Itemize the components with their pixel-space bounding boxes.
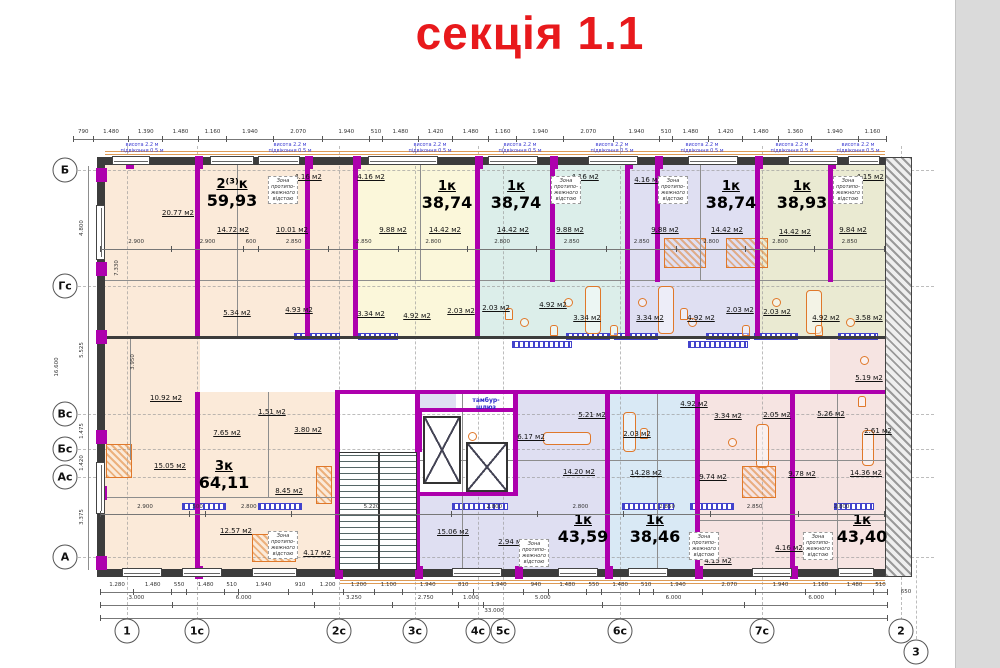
- axis-bubble: Б: [53, 158, 78, 183]
- partition-wall: [100, 280, 885, 281]
- load-bearing-wall: [550, 156, 558, 169]
- load-bearing-wall: [755, 156, 763, 169]
- room-area-label: 15.05 м2: [154, 462, 186, 470]
- apartment-total-area: 38,93: [777, 194, 828, 212]
- partition-wall: [100, 497, 337, 498]
- dimension: 2.800: [798, 511, 885, 517]
- room-area-label: 4.92 м2: [687, 314, 715, 322]
- apartment-label: 1к38,74: [491, 180, 542, 211]
- load-bearing-wall: [335, 390, 887, 394]
- room-area-label: 14.36 м2: [850, 469, 882, 477]
- apartment-type: 1к: [706, 180, 757, 194]
- dimension: 910: [288, 589, 312, 595]
- room-area-label: 4.16 м2: [775, 544, 803, 552]
- dimension: 1.160: [488, 136, 516, 142]
- room-area-label: 9.88 м2: [379, 226, 407, 234]
- window-height-note: висота 2.2 м підвіконня 0.5 м: [591, 142, 634, 155]
- dimension: 2.850: [328, 246, 398, 252]
- partition-wall: [837, 392, 838, 575]
- dimension: 1.160: [198, 136, 226, 142]
- window: [488, 156, 538, 165]
- dim-left: 4.800: [79, 220, 85, 236]
- apartment-label: 1к38,74: [422, 180, 473, 211]
- dim-line-left: [88, 166, 89, 570]
- dim-left: 1.475: [79, 423, 85, 439]
- dimension: 2.800: [205, 511, 291, 517]
- room-area-label: 14.42 м2: [497, 226, 529, 234]
- room-area-label: 8.45 м2: [275, 487, 303, 495]
- room-area: [830, 338, 885, 392]
- apartment-type: 1к: [491, 180, 542, 194]
- elevator-shaft: [423, 416, 461, 484]
- room-area-label: 2.03 м2: [623, 430, 651, 438]
- dimension: 2.900: [100, 246, 171, 252]
- sink-icon: [468, 432, 477, 441]
- dim-row-bottom-segments: 1.2801.4805501.4805101.9409101.2001.2001…: [100, 589, 888, 595]
- dimension: 1.480: [452, 136, 488, 142]
- room-area-label: 2.03 м2: [726, 306, 754, 314]
- load-bearing-wall: [96, 330, 107, 344]
- dimension: 1.940: [473, 589, 523, 595]
- dimension: 1.940: [516, 136, 563, 142]
- kitchen-icon: [742, 466, 776, 498]
- dimension: 2.850: [258, 246, 328, 252]
- room-area-label: 1.51 м2: [258, 408, 286, 416]
- apartment-total-area: 38,74: [422, 194, 473, 212]
- dimension: 550: [586, 589, 601, 595]
- dim-row-bottom-total: 33.000: [100, 615, 888, 621]
- dim-interior-vertical: 3.950: [130, 354, 136, 370]
- dim-interior-vertical: 7.330: [114, 260, 120, 276]
- dimension: 1.480: [382, 136, 418, 142]
- dimension: 1.480: [548, 589, 586, 595]
- toilet-icon: [610, 325, 618, 336]
- partition-wall: [657, 392, 658, 575]
- dimension: 1.420: [708, 136, 742, 142]
- room-area-label: 14.28 м2: [630, 469, 662, 477]
- bathtub-icon: [543, 432, 591, 445]
- dimension: 2.070: [702, 589, 755, 595]
- kitchen-icon: [316, 466, 332, 504]
- sink-icon: [520, 318, 529, 327]
- axis-grid-line: [503, 146, 504, 620]
- bathtub-icon: [585, 286, 601, 334]
- lintel-mark: [182, 503, 226, 510]
- window-height-note: висота 2.2 м підвіконня 0.5 м: [121, 142, 164, 155]
- dimension: 510: [659, 136, 672, 142]
- window: [182, 568, 222, 577]
- load-bearing-wall: [605, 392, 610, 573]
- lintel-mark: [512, 341, 572, 348]
- load-bearing-wall: [96, 168, 107, 182]
- room-area-label: 4.92 м2: [539, 301, 567, 309]
- sink-icon: [772, 298, 781, 307]
- room-area-label: 14.72 м2: [217, 226, 249, 234]
- window-height-note: висота 2.2 м підвіконня 0.5 м: [499, 142, 542, 155]
- dimension: 1.480: [835, 589, 873, 595]
- room-area-label: 4.92 м2: [812, 314, 840, 322]
- kitchen-icon: [726, 238, 768, 268]
- toilet-icon: [742, 325, 750, 336]
- window: [258, 156, 300, 165]
- room-area-label: 3.34 м2: [357, 310, 385, 318]
- dimension: 2.850: [710, 511, 798, 517]
- window: [752, 568, 792, 577]
- dimension: 2.800: [451, 511, 537, 517]
- floor-plan-page: секція 1.1 20.77 м214.72 м210.01 м24.16 …: [0, 0, 1000, 668]
- room-area-label: 3.34 м2: [573, 314, 601, 322]
- load-bearing-wall: [305, 156, 313, 169]
- dimension: 2.070: [273, 136, 323, 142]
- dimension: 1.480: [601, 589, 639, 595]
- sink-icon: [846, 318, 855, 327]
- dimension: 1.480: [742, 136, 778, 142]
- dimension: 1.940: [811, 136, 858, 142]
- room-area-label: 2.03 м2: [482, 304, 510, 312]
- dimension: 790: [73, 136, 93, 142]
- fire-safety-zone-label: Зона протипо- жежного відстою: [519, 539, 549, 567]
- dimension: 2.850: [536, 246, 606, 252]
- room-area-label: 2.61 м2: [864, 427, 892, 435]
- fire-safety-zone-label: Зона протипо- жежного відстою: [833, 176, 863, 204]
- apartment-type: 1к: [422, 180, 473, 194]
- dimension: 1.480: [93, 136, 129, 142]
- partition-wall: [462, 392, 463, 575]
- elevator-shaft: [466, 442, 508, 492]
- lintel-mark: [688, 341, 748, 348]
- apartment-label: 1к38,93: [777, 180, 828, 211]
- room-area-label: 14.20 м2: [563, 468, 595, 476]
- window: [558, 568, 598, 577]
- partition-wall: [700, 160, 701, 280]
- room-area-label: 5.34 м2: [223, 309, 251, 317]
- load-bearing-wall: [475, 156, 483, 169]
- axis-grid-line: [78, 170, 934, 171]
- room-area-label: 4.92 м2: [680, 400, 708, 408]
- dimension: 1.000: [458, 602, 483, 608]
- load-bearing-wall: [655, 156, 663, 169]
- window: [252, 568, 297, 577]
- axis-bubble: 6с: [608, 619, 633, 644]
- room-area-label: 9.84 м2: [839, 226, 867, 234]
- room-area-label: 9.78 м2: [788, 470, 816, 478]
- room-area-label: 9.88 м2: [651, 226, 679, 234]
- sink-icon: [638, 298, 647, 307]
- window: [210, 156, 254, 165]
- room-area-label: 5.19 м2: [855, 374, 883, 382]
- room-area-label: 4.93 м2: [285, 306, 313, 314]
- window: [588, 156, 638, 165]
- sink-icon: [860, 356, 869, 365]
- bathtub-icon: [756, 424, 769, 468]
- balcony-line: [105, 151, 885, 152]
- dimension: 2.070: [563, 136, 613, 142]
- room-area-label: 20.77 м2: [162, 209, 194, 217]
- dimension: 3.250: [314, 602, 392, 608]
- apartment-total-area: 64,11: [199, 474, 250, 492]
- axis-grid-line: [78, 286, 934, 287]
- room-area-label: 14.42 м2: [779, 228, 811, 236]
- axis-bubble: 1с: [185, 619, 210, 644]
- room-area-label: 4.16 м2: [294, 173, 322, 181]
- page-edge-strip: [955, 0, 1000, 668]
- room-area-label: 3.34 м2: [636, 314, 664, 322]
- room-area-label: 14.42 м2: [711, 226, 743, 234]
- dimension: 1.200: [312, 589, 343, 595]
- apartment-total-area: 43,40: [837, 528, 888, 546]
- apartment-total-area: 43,59: [558, 528, 609, 546]
- room-area-label: 2.05 м2: [763, 411, 791, 419]
- apartment-label: 3к64,11: [199, 460, 250, 491]
- axis-bubble: 7с: [750, 619, 775, 644]
- room-area-label: 4.92 м2: [403, 312, 431, 320]
- room-area-label: 7.65 м2: [213, 429, 241, 437]
- window: [122, 568, 162, 577]
- window: [688, 156, 738, 165]
- room-area-label: 9.88 м2: [556, 226, 584, 234]
- dimension: 2.850: [623, 511, 711, 517]
- room-area-label: 3.34 м2: [714, 412, 742, 420]
- dimension: 600: [243, 246, 259, 252]
- load-bearing-wall: [96, 430, 107, 444]
- axis-bubble: Гс: [53, 274, 78, 299]
- dimension: 2.900: [171, 246, 242, 252]
- dimension: 33.000: [100, 615, 888, 621]
- axis-bubble: 4с: [466, 619, 491, 644]
- room-area-label: 3.80 м2: [294, 426, 322, 434]
- fire-safety-zone-label: Зона протипо- жежного відстою: [658, 176, 688, 204]
- load-bearing-wall: [515, 566, 523, 579]
- dimension: 1.420: [418, 136, 452, 142]
- apartment-type: 1к: [777, 180, 828, 194]
- room-area-label: 5.21 м2: [578, 411, 606, 419]
- floor-plan: 20.77 м214.72 м210.01 м24.16 м24.16 м29.…: [0, 0, 1000, 668]
- window: [848, 156, 880, 165]
- room-area-label: 2.03 м2: [447, 307, 475, 315]
- room-area-label: 2.03 м2: [763, 308, 791, 316]
- dimension: 2.850: [814, 246, 885, 252]
- room-area-label: 6.17 м2: [517, 433, 545, 441]
- apartment-total-area: 38,74: [491, 194, 542, 212]
- window-height-note: висота 2.2 м підвіконня 0.5 м: [771, 142, 814, 155]
- load-bearing-wall: [96, 556, 107, 570]
- apartment-total-area: 38,74: [706, 194, 757, 212]
- window: [628, 568, 668, 577]
- axis-grid-line: [916, 560, 917, 644]
- dimension: 6.000: [744, 602, 888, 608]
- axis-grid-line: [127, 146, 128, 620]
- window: [96, 462, 105, 514]
- window-height-note: висота 2.2 м підвіконня 0.5 м: [409, 142, 452, 155]
- dimension: 2.800: [398, 246, 467, 252]
- fire-safety-zone-label: Зона протипо- жежного відстою: [268, 531, 298, 559]
- room-area-label: 4.17 м2: [303, 549, 331, 557]
- load-bearing-wall: [96, 262, 107, 276]
- window-height-note: висота 2.2 м підвіконня 0.5 м: [269, 142, 312, 155]
- dimension: 1.390: [128, 136, 162, 142]
- dim-left: 1.420: [79, 455, 85, 471]
- room-area-label: 10.92 м2: [150, 394, 182, 402]
- adjacent-section-wall: [885, 157, 912, 577]
- dimension: 500: [189, 511, 205, 517]
- load-bearing-wall: [418, 408, 517, 412]
- load-bearing-wall: [418, 492, 517, 496]
- dimension: 6.000: [602, 602, 745, 608]
- axis-grid-line: [762, 146, 763, 620]
- dimension: 510: [873, 589, 888, 595]
- lintel-mark: [258, 503, 302, 510]
- load-bearing-wall: [195, 156, 203, 169]
- dimension: 2.800: [537, 511, 623, 517]
- axis-bubble: 5с: [491, 619, 516, 644]
- dimension: 1.940: [755, 589, 805, 595]
- axis-bubble: 3: [904, 640, 929, 665]
- dimension: 1.360: [778, 136, 811, 142]
- dimension: 1.940: [613, 136, 660, 142]
- room-area-label: 15.06 м2: [437, 528, 469, 536]
- bathtub-icon: [658, 286, 674, 334]
- exterior-wall: [100, 336, 885, 339]
- dimension: 510: [639, 589, 653, 595]
- dim-offset: 650: [901, 589, 912, 595]
- axis-bubble: 3с: [403, 619, 428, 644]
- dimension: 2.800: [745, 246, 814, 252]
- room-area-label: 5.26 м2: [817, 410, 845, 418]
- window: [112, 156, 150, 165]
- sink-icon: [728, 438, 737, 447]
- kitchen-icon: [106, 444, 132, 478]
- toilet-icon: [858, 396, 866, 407]
- dimension: 2.800: [676, 246, 745, 252]
- apartment-label: 1к38,46: [630, 514, 681, 545]
- dimension: 2.850: [606, 246, 676, 252]
- dimension: 550: [171, 589, 186, 595]
- axis-bubble: Бс: [53, 437, 78, 462]
- load-bearing-wall: [353, 156, 361, 169]
- partition-wall: [420, 160, 421, 280]
- room-area-label: 3.58 м2: [855, 314, 883, 322]
- load-bearing-wall: [695, 566, 703, 579]
- dim-left: 5.525: [79, 342, 85, 358]
- apartment-total-area: 59,93: [207, 192, 258, 210]
- window-height-note: висота 2.2 м підвіконня 0.5 м: [681, 142, 724, 155]
- load-bearing-wall: [605, 566, 613, 579]
- window: [788, 156, 838, 165]
- apartment-type: 3к: [199, 460, 250, 474]
- window: [368, 156, 438, 165]
- axis-bubble: 2с: [327, 619, 352, 644]
- balcony-line: [105, 154, 885, 155]
- apartment-label: 2⁽³⁾к59,93: [207, 178, 258, 209]
- fire-safety-zone-label: Зона протипо- жежного відстою: [268, 176, 298, 204]
- apartment-type: 2⁽³⁾к: [207, 178, 258, 192]
- vestibule-label: тамбур- шлюз: [472, 397, 499, 411]
- dimension: 1.100: [374, 589, 403, 595]
- dimension: 510: [369, 136, 382, 142]
- dimension: 1.480: [186, 589, 224, 595]
- dimension: 1.480: [162, 136, 198, 142]
- fire-safety-zone-label: Зона протипо- жежного відстою: [689, 532, 719, 560]
- room-area-label: 4.16 м2: [357, 173, 385, 181]
- dim-left-total: 16.600: [54, 357, 60, 376]
- toilet-icon: [815, 325, 823, 336]
- dim-left: 3.375: [79, 509, 85, 525]
- window-height-note: висота 2.2 м підвіконня 0.5 м: [837, 142, 880, 155]
- dimension: 1.480: [672, 136, 708, 142]
- room-area-label: 14.42 м2: [429, 226, 461, 234]
- dimension: 1.940: [226, 136, 273, 142]
- room-area-label: 10.01 м2: [276, 226, 308, 234]
- dimension: 2.800: [467, 246, 536, 252]
- dimension: 2.900: [100, 511, 189, 517]
- axis-grid-line: [620, 146, 621, 620]
- dimension: 1.940: [322, 136, 369, 142]
- apartment-label: 1к38,74: [706, 180, 757, 211]
- apartment-total-area: 38,46: [630, 528, 681, 546]
- room-area-label: 9.74 м2: [699, 473, 727, 481]
- dim-row-top: 7901.4801.3901.4801.1601.9402.0701.94051…: [73, 136, 887, 142]
- dimension: 3.000: [100, 602, 172, 608]
- dimension: 5.220: [291, 511, 451, 517]
- apartment-label: 1к43,59: [558, 514, 609, 545]
- window: [838, 568, 874, 577]
- window: [452, 568, 502, 577]
- dimension: 6.000: [172, 602, 315, 608]
- axis-bubble: 1: [115, 619, 140, 644]
- dimension: 2.750: [392, 602, 458, 608]
- axis-grid-line: [78, 414, 934, 415]
- room-area-label: 12.57 м2: [220, 527, 252, 535]
- axis-bubble: А: [53, 545, 78, 570]
- toilet-icon: [550, 325, 558, 336]
- apartment-label: 1к43,40: [837, 514, 888, 545]
- load-bearing-wall: [418, 408, 422, 452]
- axis-bubble: Вс: [53, 402, 78, 427]
- fire-safety-zone-label: Зона протипо- жежного відстою: [803, 532, 833, 560]
- dim-row-interior-lower: 2.9005002.8005.2202.8002.8002.8502.8502.…: [100, 511, 885, 517]
- dim-row-interior-upper: 2.9002.9006002.8502.8502.8002.8002.8502.…: [100, 246, 885, 252]
- axis-bubble: Ас: [53, 465, 78, 490]
- balcony-line: [340, 580, 885, 581]
- dimension: 1.160: [858, 136, 887, 142]
- fire-safety-zone-label: Зона протипо- жежного відстою: [551, 176, 581, 204]
